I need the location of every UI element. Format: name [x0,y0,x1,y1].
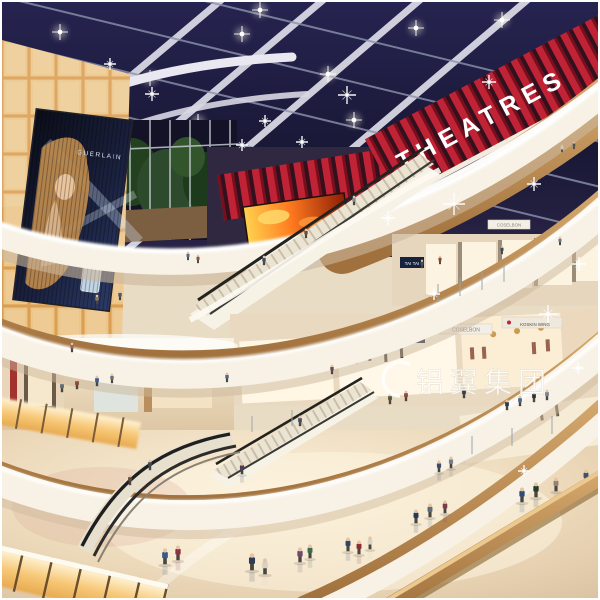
store-sign-coselbon-upper: COSELBON [488,220,530,229]
svg-text:TAI TAI: TAI TAI [405,261,420,266]
store-sign-tai-tai-upper: TAI TAI [400,257,424,268]
koskin-wing-logo-icon [507,321,511,325]
store-sign-koskin-wing: KOSKIN WING [502,317,562,328]
watermark-text: 铝翼集团 [416,366,552,399]
svg-text:COSELBON: COSELBON [497,223,521,228]
mall-atrium-rendering: THEATRES GUERLAIN [0,0,600,600]
svg-text:KOSKIN WING: KOSKIN WING [520,322,550,327]
mall-scene-canvas: THEATRES GUERLAIN [2,2,600,600]
